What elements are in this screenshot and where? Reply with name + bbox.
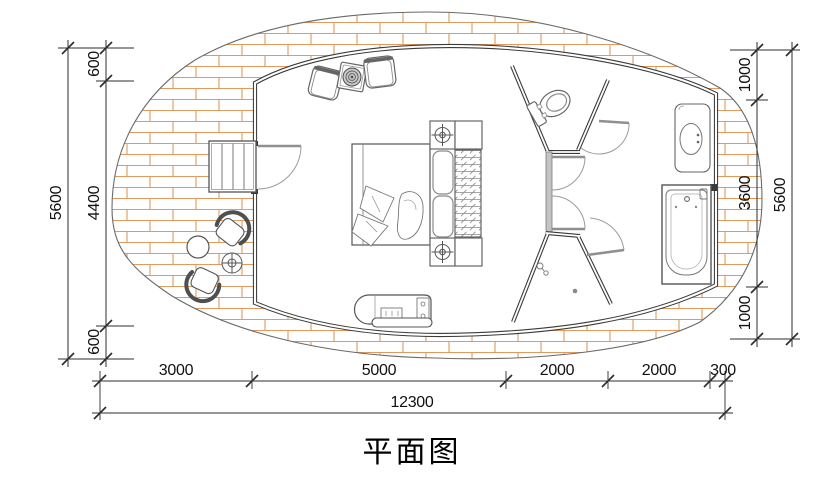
armchair-icon xyxy=(363,55,396,88)
bed-pillow-icon xyxy=(433,151,453,194)
floor-drain-icon xyxy=(573,289,578,294)
dim-label: 3000 xyxy=(159,362,194,379)
dim-total-label: 5600 xyxy=(48,185,65,220)
dim-label: 600 xyxy=(86,329,103,355)
dim-label: 2000 xyxy=(642,362,677,379)
dim-label: 600 xyxy=(86,51,103,77)
bed-pillow-icon xyxy=(433,196,453,237)
dim-total-label: 12300 xyxy=(391,394,434,411)
dim-label: 1000 xyxy=(737,295,754,330)
dim-label: 4400 xyxy=(86,185,103,220)
hall-wall xyxy=(546,152,552,234)
entry-stairs-icon xyxy=(209,141,256,192)
tv-cabinet-icon xyxy=(355,295,433,327)
outdoor-side-table-icon xyxy=(222,253,242,273)
outdoor-round-table-icon xyxy=(187,236,209,258)
dim-label: 5000 xyxy=(362,362,397,379)
wardrobe-hangers-icon xyxy=(455,150,481,237)
double-bed-icon xyxy=(352,144,430,246)
headboard-wardrobe-unit xyxy=(430,121,482,266)
dim-total-label: 5600 xyxy=(772,177,789,212)
floor-plan-sheet: 600 4400 600 5600 1000 3600 1000 5600 30… xyxy=(0,0,837,496)
dim-label: 1000 xyxy=(737,57,754,92)
dim-label: 3600 xyxy=(737,175,754,210)
round-tray-table-icon xyxy=(337,62,367,92)
floor-plan-drawing: 600 4400 600 5600 1000 3600 1000 5600 30… xyxy=(0,0,837,496)
dim-label: 300 xyxy=(710,362,736,379)
dim-label: 2000 xyxy=(540,362,575,379)
bathtub-icon xyxy=(662,185,711,284)
drawing-title: 平面图 xyxy=(363,436,462,469)
washbasin-icon xyxy=(675,104,710,172)
